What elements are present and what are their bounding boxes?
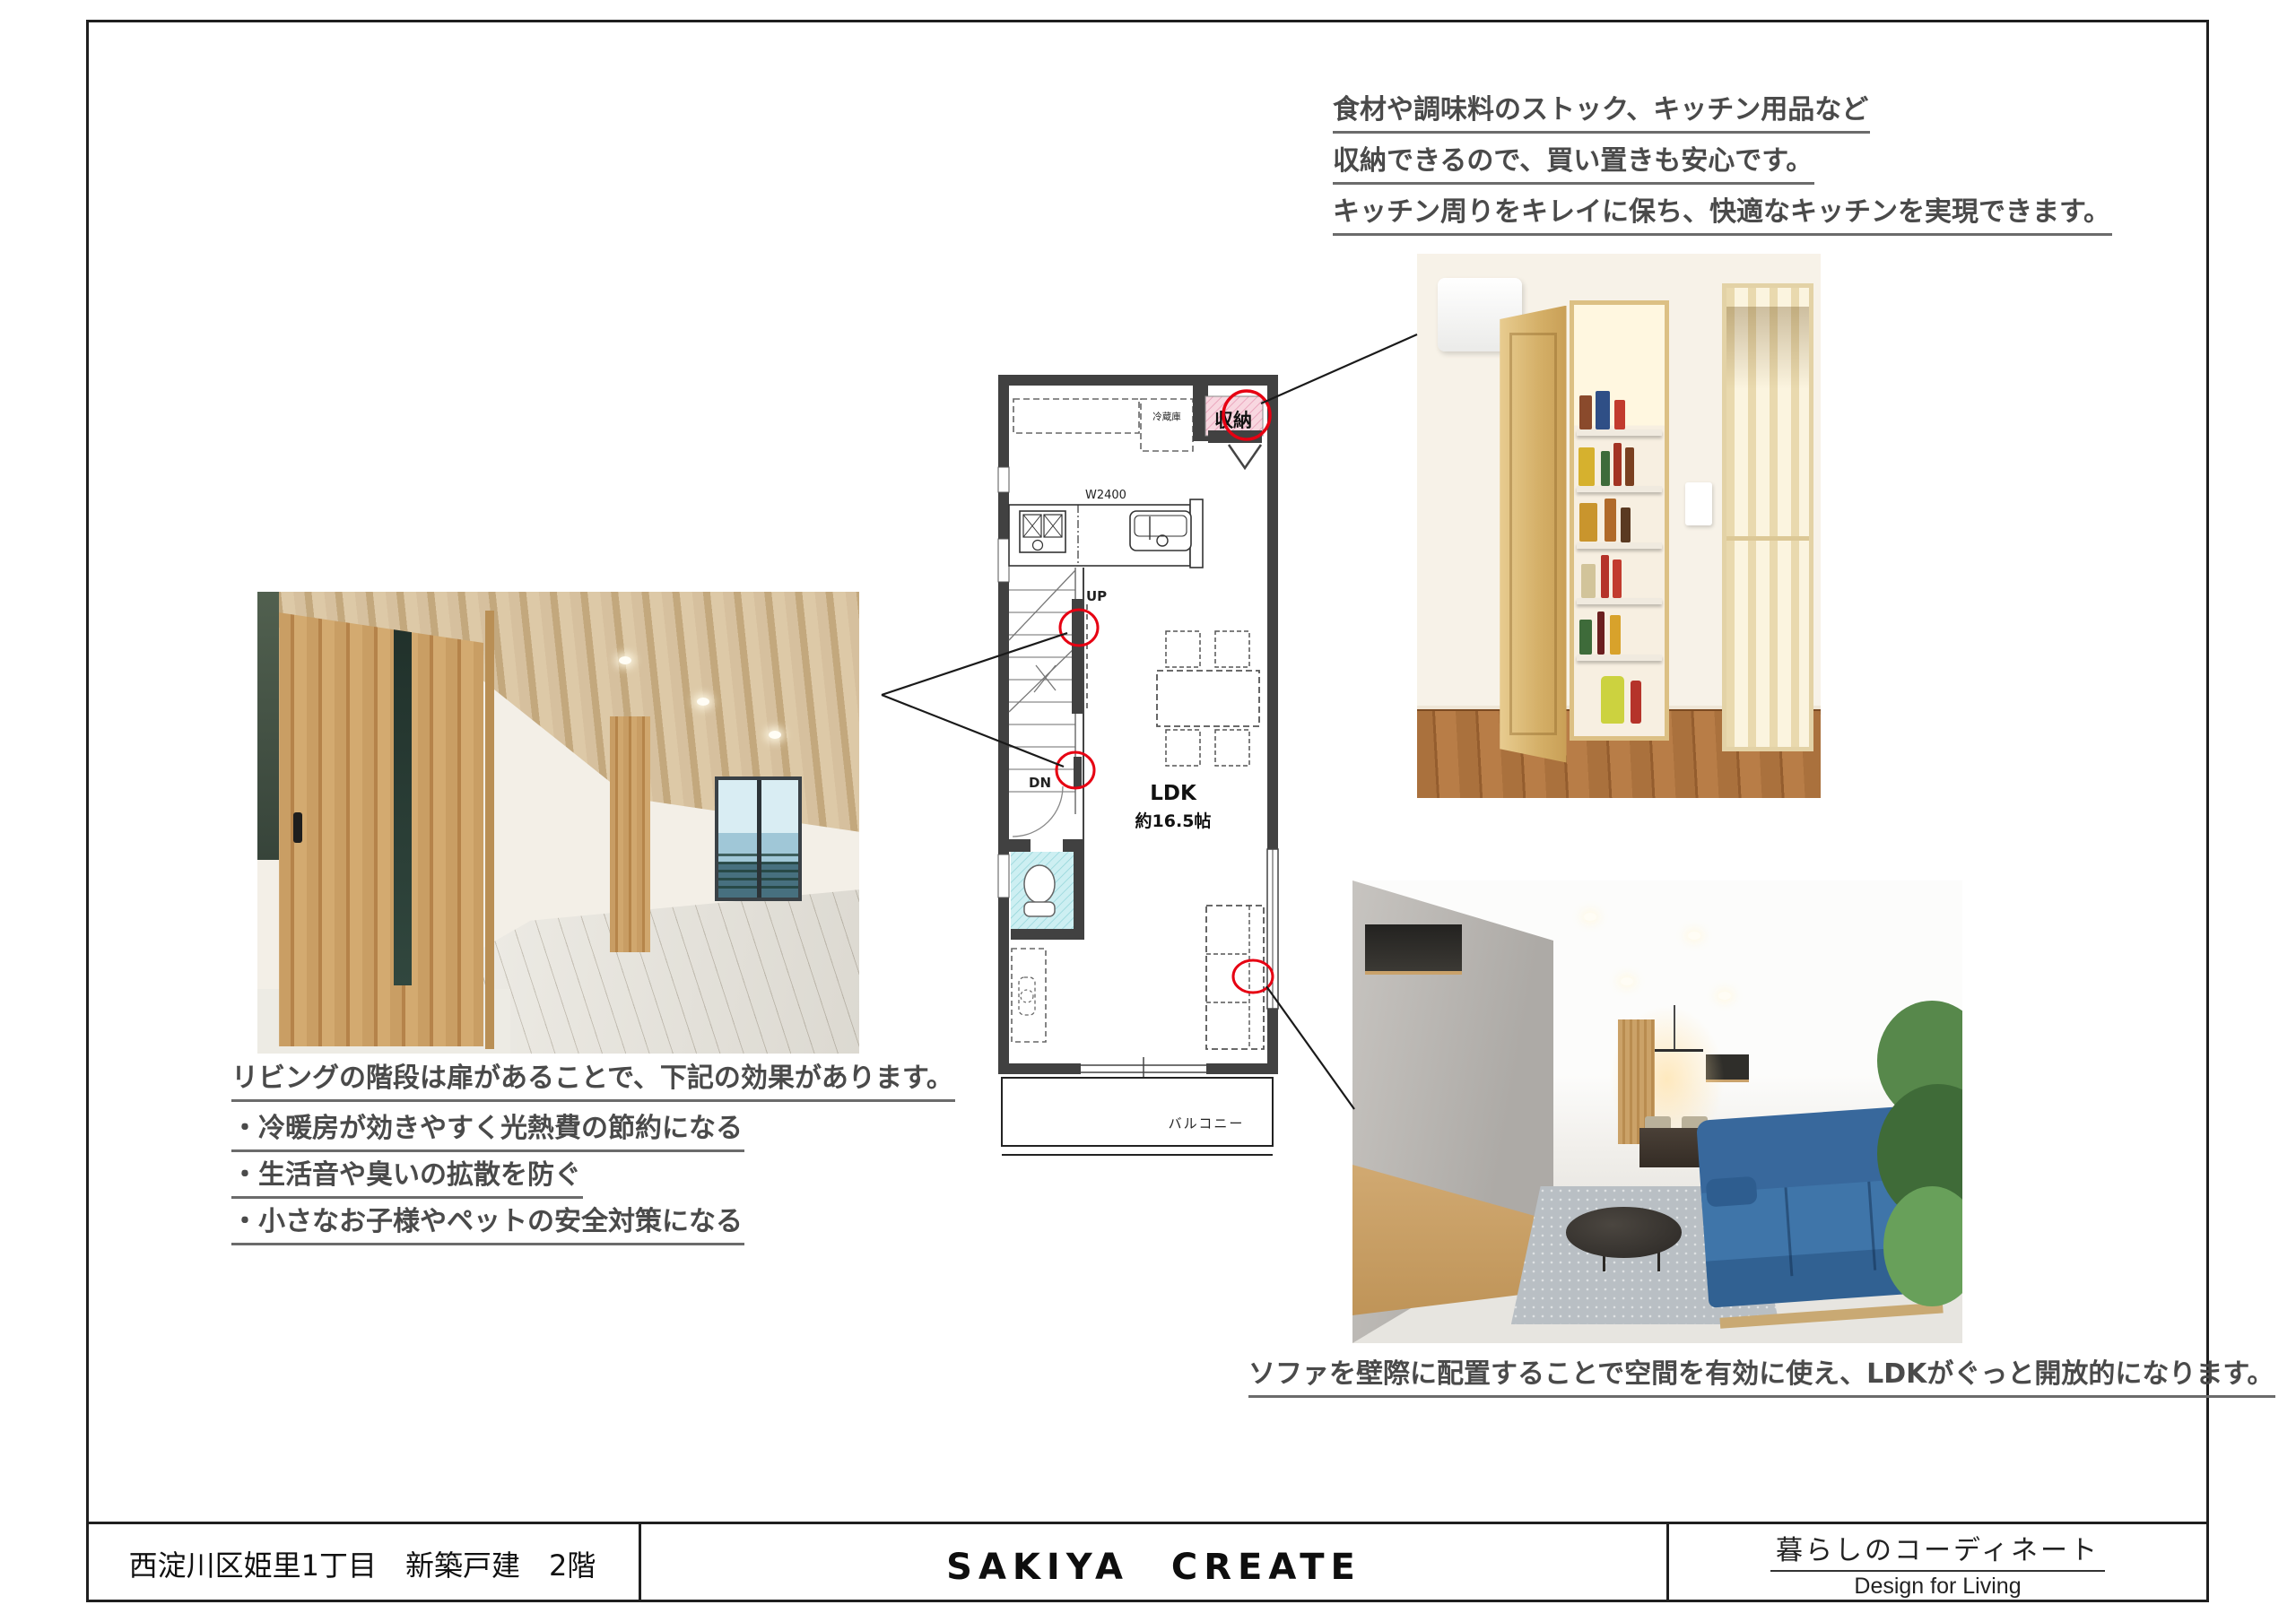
toilet-tank xyxy=(1024,902,1055,916)
balcony-outline xyxy=(1002,1078,1273,1146)
footer-brand-subtitle: Design for Living xyxy=(1854,1574,2021,1600)
pantry-door-panel xyxy=(1509,333,1557,735)
desk-outline xyxy=(1012,949,1046,1042)
kitchen-cabinet-dashed xyxy=(1013,399,1139,433)
kitchen-note-line-3: キッチン周りをキレイに保ち、快適なキッチンを実現できます。 xyxy=(1333,197,2112,236)
stairs-note-line-4: ・小さなお子様やペットの安全対策になる xyxy=(231,1207,744,1245)
stair-break-x xyxy=(1034,665,1056,692)
room-size-label: 約16.5帖 xyxy=(1135,811,1212,831)
door-glass-strip xyxy=(394,612,413,985)
toilet-wall-stub xyxy=(1009,839,1031,852)
window-mullion xyxy=(757,780,761,898)
pantry-item xyxy=(1581,564,1596,599)
storage-label: 収納 xyxy=(1214,410,1252,431)
pantry-item xyxy=(1579,620,1592,655)
footer-bar: 西淀川区姫里1丁目 新築戸建 2階 SAKIYA CREATE 暮らしのコーディ… xyxy=(86,1522,2209,1602)
fridge-outline xyxy=(1141,399,1193,451)
pantry-item xyxy=(1625,447,1633,486)
storage-arrow xyxy=(1229,445,1261,468)
hallway-photo xyxy=(257,592,859,1054)
kitchen-note-line-2: 収納できるので、買い置きも安心です。 xyxy=(1333,146,1814,185)
toilet-bottom-wall xyxy=(1011,929,1084,940)
dining-chair-outline xyxy=(1215,631,1249,667)
downlight xyxy=(1584,913,1596,921)
chair-seat xyxy=(1021,990,1033,1002)
pantry-shelf xyxy=(1577,429,1662,436)
wood-sliding-door xyxy=(279,612,483,1046)
downlight xyxy=(619,656,631,664)
door-handle xyxy=(293,812,302,843)
left-wall-opening xyxy=(998,467,1009,492)
downlight xyxy=(1688,932,1700,940)
stair-treads xyxy=(1009,590,1075,792)
door-swing-arc xyxy=(1013,786,1063,837)
dining-chair-outline xyxy=(1166,730,1200,766)
pantry-item xyxy=(1596,391,1610,429)
pantry-spray-bottle xyxy=(1631,681,1641,724)
dn-label: DN xyxy=(1029,775,1051,791)
far-window xyxy=(715,776,802,901)
up-label: UP xyxy=(1086,588,1107,604)
pantry-item xyxy=(1605,499,1616,542)
dn-door-stub xyxy=(1074,757,1082,787)
sofa-bolster xyxy=(1705,1176,1757,1208)
pantry-item xyxy=(1613,559,1622,598)
stairs-note-line-1: リビングの階段は扉があることで、下記の効果があります。 xyxy=(231,1063,955,1102)
living-room-photo xyxy=(1352,880,1962,1343)
downlight xyxy=(1621,977,1633,985)
downlight xyxy=(769,731,781,739)
sofa-outline xyxy=(1206,906,1264,1049)
balcony-label: バルコニー xyxy=(1169,1115,1245,1132)
dining-table-outline xyxy=(1157,671,1259,726)
toilet-bowl xyxy=(1024,865,1055,903)
window-pane xyxy=(718,780,798,898)
floor-plan: 冷蔵庫 収納 W2400 UP DN xyxy=(996,373,1282,1162)
downlight xyxy=(1718,992,1731,1000)
pantry-item xyxy=(1613,443,1622,486)
pantry-item xyxy=(1601,451,1610,486)
stairs-note-line-2: ・冷暖房が効きやすく光熱費の節約になる xyxy=(231,1114,744,1152)
fridge-label: 冷蔵庫 xyxy=(1152,411,1181,422)
toilet-right-wall xyxy=(1074,852,1084,940)
stairs-note-line-3: ・生活音や臭いの拡散を防ぐ xyxy=(231,1160,583,1199)
dining-chair-outline xyxy=(1215,730,1249,766)
pantry-item xyxy=(1597,612,1605,655)
pantry-photo xyxy=(1417,254,1821,798)
pendant-light xyxy=(1655,1049,1703,1052)
counter-width-label: W2400 xyxy=(1085,489,1126,502)
footer-brand-title: 暮らしのコーディネート xyxy=(1770,1528,2105,1572)
pantry-item xyxy=(1578,447,1595,486)
pantry-door xyxy=(1500,306,1566,763)
sofa-wood-base xyxy=(1720,1302,1944,1328)
stair-pocket-door xyxy=(1072,599,1083,714)
shoji-screen xyxy=(1722,283,1814,751)
door-jamb xyxy=(485,611,495,1049)
shoji-rail xyxy=(1726,536,1810,541)
pantry-shelf xyxy=(1577,598,1662,604)
counter-end-panel xyxy=(1190,499,1203,568)
pantry-item xyxy=(1601,555,1609,598)
pantry-jug xyxy=(1601,676,1624,724)
pantry-opening xyxy=(1570,300,1669,742)
stair-winder-line xyxy=(1009,570,1075,640)
toilet-window xyxy=(998,854,1009,898)
pantry-item xyxy=(1579,503,1597,542)
pendant-cord xyxy=(1674,1005,1675,1052)
shoji-shadow xyxy=(1726,307,1810,389)
footer-property-title: 西淀川区姫里1丁目 新築戸建 2階 xyxy=(86,1524,639,1602)
footer-company-name: SAKIYA CREATE xyxy=(639,1524,1666,1602)
sink xyxy=(1130,511,1191,551)
slit-window xyxy=(1365,924,1463,975)
pantry-shelf xyxy=(1577,486,1662,492)
pantry-shelf xyxy=(1577,542,1662,549)
far-wood-door xyxy=(610,716,651,952)
room-name-label: LDK xyxy=(1150,782,1197,805)
wall-switch xyxy=(1685,482,1711,526)
chair-outline xyxy=(1019,977,1035,1015)
dining-chair-outline xyxy=(1166,631,1200,667)
pantry-shelf xyxy=(1577,655,1662,661)
pantry-item xyxy=(1614,400,1625,430)
footer-brand: 暮らしのコーディネート Design for Living xyxy=(1666,1524,2206,1602)
glass-edge xyxy=(257,592,279,860)
kitchen-note-line-1: 食材や調味料のストック、キッチン用品など xyxy=(1333,95,1870,134)
pantry-item xyxy=(1621,507,1630,542)
sofa-note: ソファを壁際に配置することで空間を有効に使え、LDKがぐっと開放的になります。 xyxy=(1248,1359,2275,1398)
toilet-wall-stub xyxy=(1063,839,1084,852)
coffee-table xyxy=(1566,1207,1682,1258)
pantry-item xyxy=(1579,395,1592,430)
pantry-item xyxy=(1610,615,1621,654)
left-window xyxy=(998,539,1009,582)
